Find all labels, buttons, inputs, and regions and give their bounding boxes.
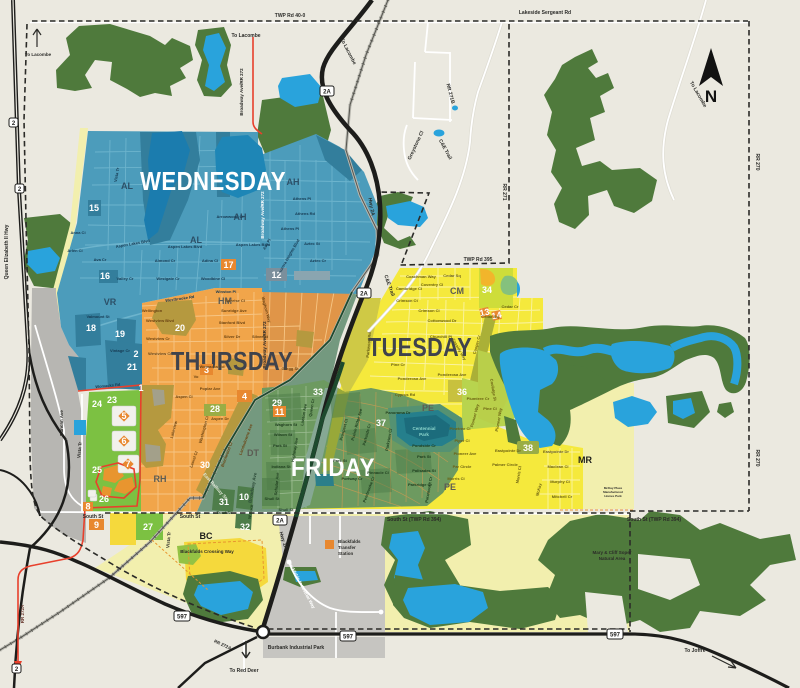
svg-text:Station: Station bbox=[338, 551, 354, 556]
svg-text:Westview Blvd: Westview Blvd bbox=[146, 318, 174, 323]
svg-text:Arlen Cl: Arlen Cl bbox=[67, 248, 82, 253]
svg-text:Maclean Cl: Maclean Cl bbox=[548, 464, 569, 469]
svg-text:Pine Cl: Pine Cl bbox=[483, 406, 497, 411]
svg-text:4: 4 bbox=[242, 392, 247, 402]
svg-text:BC: BC bbox=[200, 531, 213, 541]
svg-text:RR 270: RR 270 bbox=[754, 154, 760, 171]
svg-text:26: 26 bbox=[99, 494, 109, 504]
svg-text:Panorama Dr: Panorama Dr bbox=[386, 410, 411, 415]
svg-text:Winston Pl: Winston Pl bbox=[216, 289, 237, 294]
svg-text:Shull St: Shull St bbox=[279, 507, 295, 512]
svg-text:Pondside Cr: Pondside Cr bbox=[412, 443, 436, 448]
svg-text:15: 15 bbox=[89, 203, 99, 213]
svg-text:2: 2 bbox=[133, 349, 138, 359]
svg-text:Eastpointe Dr: Eastpointe Dr bbox=[495, 448, 521, 453]
svg-text:Cedar Cr: Cedar Cr bbox=[502, 304, 519, 309]
svg-text:7: 7 bbox=[125, 459, 130, 469]
svg-text:South St: South St bbox=[83, 514, 104, 520]
svg-text:Crimson Ct: Crimson Ct bbox=[396, 298, 418, 303]
svg-text:6: 6 bbox=[121, 436, 126, 446]
svg-text:Eastpointe Dr: Eastpointe Dr bbox=[543, 449, 569, 454]
svg-text:THURSDAY: THURSDAY bbox=[171, 346, 293, 376]
svg-text:RR 270: RR 270 bbox=[754, 450, 760, 467]
svg-text:TWP Rd 395: TWP Rd 395 bbox=[464, 257, 493, 263]
svg-text:South St (TWP Rd 394): South St (TWP Rd 394) bbox=[627, 517, 681, 523]
svg-text:Athens Pl: Athens Pl bbox=[293, 196, 311, 201]
svg-text:23: 23 bbox=[107, 395, 117, 405]
svg-text:Wellington: Wellington bbox=[142, 308, 163, 313]
svg-text:8: 8 bbox=[85, 502, 90, 512]
svg-text:21: 21 bbox=[127, 362, 137, 372]
svg-text:Athens Rd: Athens Rd bbox=[295, 211, 316, 216]
svg-text:Valmount St: Valmount St bbox=[86, 314, 110, 319]
svg-text:Duncan Ave: Duncan Ave bbox=[59, 410, 64, 436]
svg-text:Aztec Cr: Aztec Cr bbox=[310, 258, 327, 263]
svg-text:2A: 2A bbox=[276, 519, 284, 525]
svg-text:36: 36 bbox=[457, 387, 467, 397]
svg-text:Coventry Cl: Coventry Cl bbox=[421, 282, 443, 287]
svg-text:Ponderosa Ave: Ponderosa Ave bbox=[438, 372, 468, 377]
svg-text:Burbank Industrial Park: Burbank Industrial Park bbox=[268, 645, 325, 651]
svg-text:597: 597 bbox=[343, 635, 354, 641]
svg-text:Crimson Cl: Crimson Cl bbox=[418, 308, 439, 313]
svg-text:Cambridge Cl: Cambridge Cl bbox=[396, 286, 422, 291]
svg-text:DT: DT bbox=[247, 448, 259, 458]
svg-text:Coachman Way: Coachman Way bbox=[406, 274, 436, 279]
svg-text:PE: PE bbox=[444, 482, 456, 492]
svg-text:2A: 2A bbox=[360, 292, 368, 298]
svg-text:Palisades St: Palisades St bbox=[412, 468, 436, 473]
svg-text:34: 34 bbox=[482, 285, 492, 295]
svg-text:Aspen Dr: Aspen Dr bbox=[211, 416, 229, 421]
svg-text:Lakeside Sergeant Rd: Lakeside Sergeant Rd bbox=[519, 10, 571, 16]
svg-text:Athens Pl: Athens Pl bbox=[281, 226, 299, 231]
svg-text:Woodbine Cl: Woodbine Cl bbox=[201, 276, 225, 281]
svg-text:27: 27 bbox=[143, 522, 153, 532]
svg-text:Stanford Blvd: Stanford Blvd bbox=[219, 320, 246, 325]
svg-text:Blackfalds Crossing Way: Blackfalds Crossing Way bbox=[180, 549, 234, 554]
svg-text:Broadway Ave/RR 272: Broadway Ave/RR 272 bbox=[260, 191, 265, 239]
svg-text:597: 597 bbox=[177, 615, 188, 621]
svg-text:To Lacombe: To Lacombe bbox=[25, 52, 52, 57]
svg-text:Par Circle: Par Circle bbox=[453, 464, 472, 469]
svg-text:Pioneer Ave: Pioneer Ave bbox=[454, 451, 478, 456]
svg-text:Homes Park: Homes Park bbox=[604, 494, 622, 498]
svg-text:Valley Cr: Valley Cr bbox=[117, 276, 134, 281]
svg-text:Piper Cl: Piper Cl bbox=[454, 438, 469, 443]
svg-text:Palmer Circle: Palmer Circle bbox=[492, 462, 518, 467]
svg-text:Silver Dr: Silver Dr bbox=[224, 334, 241, 339]
svg-text:To Lacombe: To Lacombe bbox=[231, 33, 260, 39]
svg-text:AL: AL bbox=[121, 181, 133, 191]
svg-text:Morris Cl: Morris Cl bbox=[447, 476, 464, 481]
svg-text:Wilson St: Wilson St bbox=[274, 432, 293, 437]
svg-text:RH: RH bbox=[154, 474, 167, 484]
svg-text:Broadway Ave/RR 272: Broadway Ave/RR 272 bbox=[262, 321, 267, 369]
svg-text:18: 18 bbox=[86, 323, 96, 333]
svg-text:Waghorn St: Waghorn St bbox=[275, 422, 298, 427]
svg-text:CM: CM bbox=[450, 286, 464, 296]
svg-text:Anna Cl: Anna Cl bbox=[70, 230, 85, 235]
svg-text:Murphy Cl: Murphy Cl bbox=[550, 479, 570, 484]
svg-text:Queen Elizabeth II Hwy: Queen Elizabeth II Hwy bbox=[4, 224, 10, 279]
svg-text:25: 25 bbox=[92, 465, 102, 475]
svg-text:Pinnacle Cl: Pinnacle Cl bbox=[367, 470, 389, 475]
svg-text:30: 30 bbox=[200, 460, 210, 470]
svg-text:Park: Park bbox=[419, 432, 429, 437]
svg-text:19: 19 bbox=[115, 329, 125, 339]
svg-text:Ava Cr: Ava Cr bbox=[94, 257, 107, 262]
svg-text:Adina Cl: Adina Cl bbox=[202, 258, 218, 263]
svg-text:Centennial: Centennial bbox=[412, 426, 435, 431]
svg-text:Mitchell Cr: Mitchell Cr bbox=[552, 494, 573, 499]
svg-text:Churchill Pl: Churchill Pl bbox=[430, 334, 452, 339]
svg-text:Park St: Park St bbox=[273, 443, 287, 448]
svg-text:PE: PE bbox=[422, 403, 434, 413]
svg-text:AH: AH bbox=[287, 177, 300, 187]
svg-text:20: 20 bbox=[175, 323, 185, 333]
svg-text:Cottonwood Dr: Cottonwood Dr bbox=[428, 318, 457, 323]
svg-text:Park St: Park St bbox=[417, 454, 431, 459]
svg-text:Aspen Lakes Blvd: Aspen Lakes Blvd bbox=[168, 244, 203, 249]
svg-text:Westview Cr: Westview Cr bbox=[146, 336, 170, 341]
svg-text:Gregg St: Gregg St bbox=[282, 366, 300, 371]
svg-text:Cyprus Rd: Cyprus Rd bbox=[395, 392, 416, 397]
svg-text:To Joffre: To Joffre bbox=[684, 648, 705, 654]
svg-text:Trout St: Trout St bbox=[216, 510, 232, 515]
svg-text:Westgate Cr: Westgate Cr bbox=[156, 276, 180, 281]
svg-text:Natural Area: Natural Area bbox=[599, 556, 626, 561]
svg-text:Vintage Cr: Vintage Cr bbox=[110, 348, 130, 353]
svg-text:Westview Cr: Westview Cr bbox=[148, 351, 172, 356]
svg-text:33: 33 bbox=[313, 387, 323, 397]
svg-text:Shull St: Shull St bbox=[265, 496, 281, 501]
svg-text:Arrowwood Cl: Arrowwood Cl bbox=[216, 214, 243, 219]
svg-text:28: 28 bbox=[210, 404, 220, 414]
svg-text:32: 32 bbox=[240, 522, 250, 532]
svg-text:2A: 2A bbox=[323, 90, 331, 96]
svg-text:RR 271: RR 271 bbox=[501, 184, 507, 201]
svg-text:MR: MR bbox=[578, 455, 592, 465]
svg-text:Poplar Ave: Poplar Ave bbox=[200, 386, 221, 391]
svg-text:Plumtree Cr: Plumtree Cr bbox=[467, 396, 490, 401]
svg-text:Ponderosa Ave: Ponderosa Ave bbox=[398, 376, 428, 381]
svg-text:South St: South St bbox=[180, 514, 201, 520]
svg-text:Womacks Rd: Womacks Rd bbox=[199, 364, 225, 369]
svg-text:Vo: Vo bbox=[194, 374, 199, 379]
svg-text:Mary & Cliff Soper: Mary & Cliff Soper bbox=[592, 550, 631, 555]
svg-text:To Red Deer: To Red Deer bbox=[229, 668, 258, 674]
svg-text:Cedar Sq: Cedar Sq bbox=[481, 314, 499, 319]
svg-text:Almond Cr: Almond Cr bbox=[155, 258, 176, 263]
svg-text:Pinetree Cl: Pinetree Cl bbox=[450, 426, 471, 431]
svg-text:5: 5 bbox=[121, 411, 126, 421]
svg-text:VR: VR bbox=[104, 297, 117, 307]
svg-text:17: 17 bbox=[223, 260, 233, 270]
svg-text:Pine Cr: Pine Cr bbox=[391, 362, 405, 367]
svg-text:South St (TWP Rd 394): South St (TWP Rd 394) bbox=[387, 517, 441, 523]
svg-text:TWP Rd 40-0: TWP Rd 40-0 bbox=[275, 13, 306, 19]
svg-text:Transfer: Transfer bbox=[338, 545, 356, 550]
svg-text:Aztec St: Aztec St bbox=[304, 241, 320, 246]
svg-text:16: 16 bbox=[100, 271, 110, 281]
svg-text:24: 24 bbox=[92, 399, 102, 409]
svg-text:Portway Cr: Portway Cr bbox=[341, 476, 363, 481]
svg-text:38: 38 bbox=[523, 443, 533, 453]
svg-text:Silver St: Silver St bbox=[252, 334, 269, 339]
svg-text:Cedar Sq: Cedar Sq bbox=[443, 273, 461, 278]
svg-text:Sunrise Cl: Sunrise Cl bbox=[225, 298, 245, 303]
svg-text:RR 272A: RR 272A bbox=[20, 604, 25, 623]
svg-text:597: 597 bbox=[610, 633, 621, 639]
svg-text:9: 9 bbox=[94, 520, 99, 530]
svg-text:Sunridge Ave: Sunridge Ave bbox=[221, 308, 247, 313]
svg-text:Broadway Ave/RR 272: Broadway Ave/RR 272 bbox=[239, 68, 244, 116]
svg-text:37: 37 bbox=[376, 418, 386, 428]
svg-text:11: 11 bbox=[275, 407, 285, 417]
svg-text:Blackfalds: Blackfalds bbox=[338, 539, 361, 544]
svg-text:Indiana St: Indiana St bbox=[271, 464, 291, 469]
svg-text:Aspen Cl: Aspen Cl bbox=[175, 394, 192, 399]
svg-text:Park St: Park St bbox=[333, 458, 347, 463]
svg-text:1: 1 bbox=[138, 383, 143, 393]
